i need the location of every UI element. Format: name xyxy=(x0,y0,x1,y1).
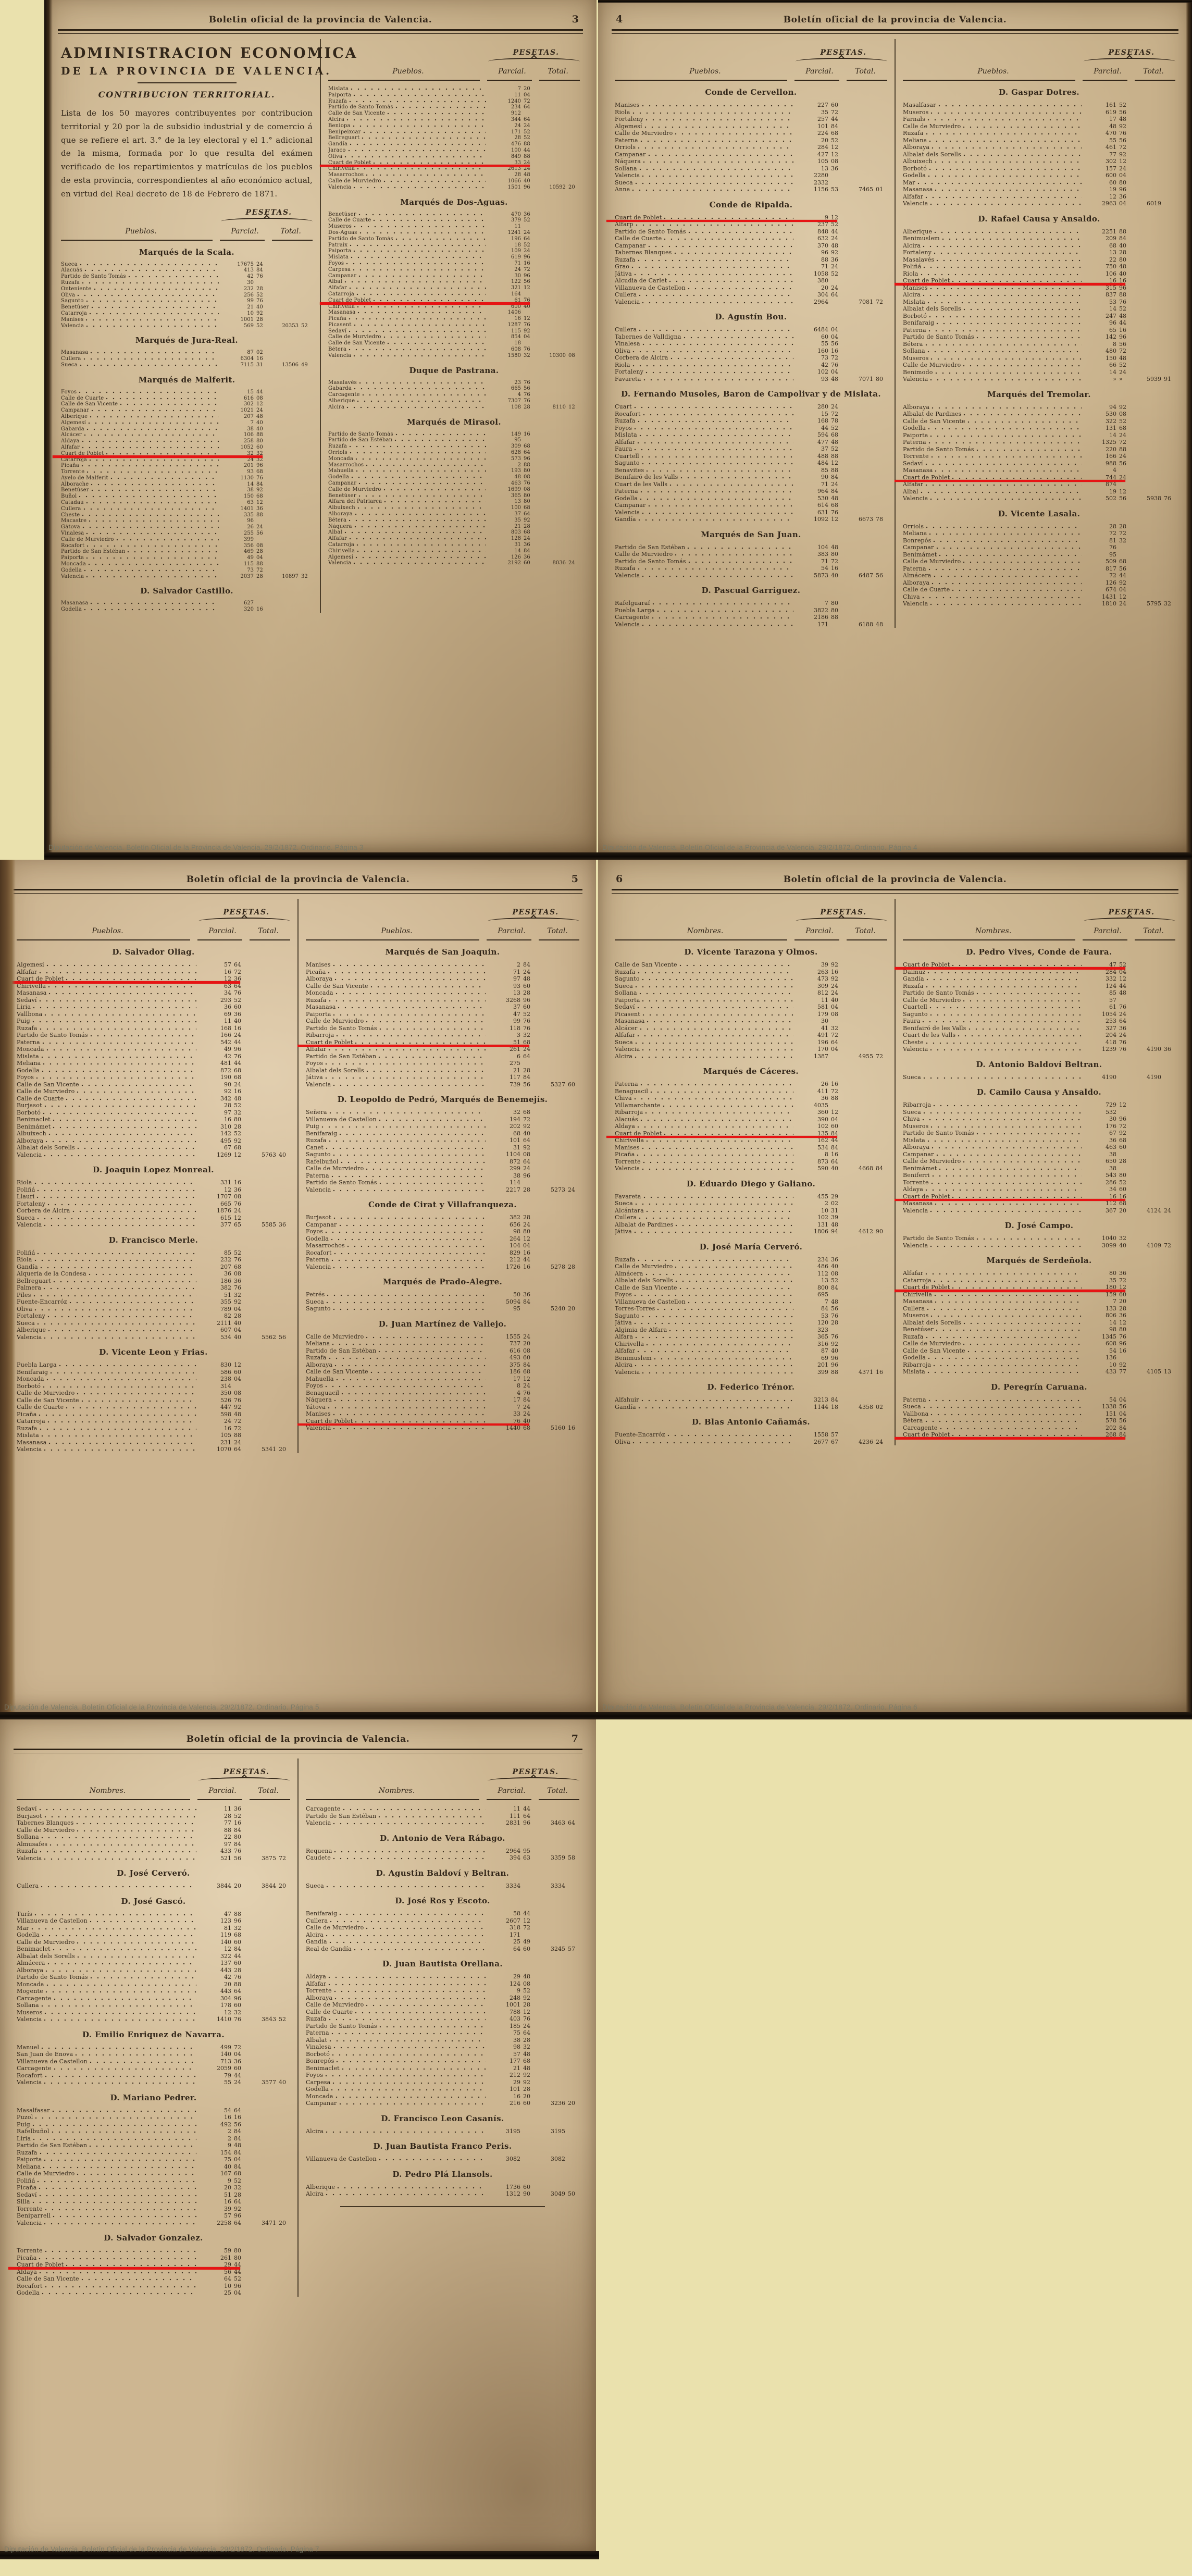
pueblo-name: Museros xyxy=(17,2009,42,2016)
parcial-value: 2280 xyxy=(198,1834,246,1840)
parcial-value-centimos: 92 xyxy=(1116,404,1132,411)
total-value: 618848 xyxy=(843,621,887,628)
pueblo-name: Villanueva de Castellon xyxy=(615,284,686,291)
parcial-value: 4 xyxy=(1084,467,1132,474)
pueblo-name: Almusafes xyxy=(17,1841,47,1848)
table-row: Puebla Larga382280 xyxy=(615,607,887,614)
page-number: 3 xyxy=(548,14,579,25)
table-row: Cuart de Poblet5168 xyxy=(306,1039,579,1046)
page-scan-3: Boletin oficial de la provincia de Valen… xyxy=(44,0,597,856)
parcial-value-pesetas: 100 xyxy=(488,505,521,511)
parcial-value-pesetas: 2 xyxy=(198,2128,231,2135)
parcial-value-centimos: 24 xyxy=(828,989,843,996)
parcial-value-centimos: 84 xyxy=(231,2163,246,2170)
parcial-value: 2280 xyxy=(1084,256,1132,263)
total-value: 419036 xyxy=(1132,1046,1175,1052)
pueblo-name: Yátova xyxy=(306,1404,326,1410)
table-row: Calle de Cuarte63224 xyxy=(615,235,887,242)
dot-leader xyxy=(83,357,219,360)
total-value: 746501 xyxy=(843,186,887,193)
pesetas-header-line: PESETAS. xyxy=(306,1768,579,1776)
table-row: Riola3572 xyxy=(615,109,887,116)
parcial-value: 8132 xyxy=(198,1925,246,1931)
pueblo-name: Alfafar xyxy=(61,444,80,450)
parcial-value-pesetas: 36 xyxy=(1084,1137,1116,1144)
parcial-value: 46376 xyxy=(488,480,536,486)
total-value-pesetas: 10897 xyxy=(269,574,299,579)
dot-leader xyxy=(86,556,219,559)
dot-leader xyxy=(647,1020,793,1023)
intro-paragraph: Lista de los 50 mayores contribuyentes p… xyxy=(61,107,313,201)
parcial-value-centimos: 96 xyxy=(1116,186,1132,193)
parcial-value-pesetas: 67 xyxy=(1084,1130,1116,1136)
pueblo-name: Ruzafa xyxy=(615,417,636,424)
parcial-value-pesetas: 1345 xyxy=(1084,1333,1116,1340)
parcial-value-centimos: 24 xyxy=(231,1207,246,1214)
parcial-value: 1336 xyxy=(796,165,843,172)
table-row: Aldaya10260 xyxy=(615,1123,887,1130)
total-value-centimos: 40 xyxy=(276,2079,290,2086)
header-rules xyxy=(17,1799,290,1800)
dot-leader xyxy=(349,537,486,540)
parcial-value-centimos: 32 xyxy=(1116,1235,1132,1242)
parcial-value: 19068 xyxy=(198,1074,246,1081)
parcial-value-pesetas: 581 xyxy=(796,1004,828,1010)
table-row: Valencia2963046019 xyxy=(903,200,1175,207)
dot-leader xyxy=(39,2194,196,2197)
parcial-value-pesetas: 66 xyxy=(1084,362,1116,368)
parcial-value-centimos: 96 xyxy=(254,463,269,468)
pueblo-name: Paterna xyxy=(903,1396,926,1403)
dot-leader xyxy=(934,574,1082,577)
parcial-value: 23124 xyxy=(198,1439,246,1446)
parcial-value: 2848 xyxy=(488,172,536,178)
parcial-value-centimos: 92 xyxy=(1116,1130,1132,1136)
table-row: Caudete39463335958 xyxy=(306,1854,579,1862)
red-underline-mark xyxy=(297,1423,529,1426)
table-row: Paiporta1104 xyxy=(328,92,580,98)
parcial-value-pesetas: 54 xyxy=(796,565,828,572)
parcial-value-centimos: 36 xyxy=(521,554,536,560)
dot-leader xyxy=(922,596,1082,599)
parcial-value: 48888 xyxy=(796,453,843,460)
pueblo-name: Algemesí xyxy=(17,961,44,968)
parcial-value-centimos: 28 xyxy=(254,286,269,292)
parcial-value-pesetas: 534 xyxy=(796,1144,828,1151)
parcial-value: 6792 xyxy=(1084,1130,1132,1136)
parcial-value: 13148 xyxy=(796,1221,843,1228)
parcial-value: 84844 xyxy=(796,228,843,235)
parcial-value: 31028 xyxy=(198,1123,246,1130)
parcial-value-pesetas: 101 xyxy=(488,1137,520,1144)
dot-leader xyxy=(356,292,486,295)
dot-leader xyxy=(353,354,486,357)
parcial-value-centimos: 76 xyxy=(1116,1046,1132,1052)
parcial-value-pesetas: 1066 xyxy=(488,178,521,184)
dot-leader xyxy=(935,371,1082,374)
parcial-value: 3572 xyxy=(796,109,843,116)
dot-leader xyxy=(43,1062,196,1065)
dot-leader xyxy=(634,448,793,451)
dot-leader xyxy=(366,1020,486,1023)
parcial-value: 1767524 xyxy=(221,262,269,267)
parcial-value-centimos: 08 xyxy=(521,474,536,480)
parcial-value: 205960 xyxy=(198,2065,246,2072)
parcial-value: 6840 xyxy=(488,1130,536,1137)
pueblo-name: Caudete xyxy=(306,1854,331,1861)
parcial-value-centimos: 96 xyxy=(231,2283,246,2289)
parcial-value-centimos: 28 xyxy=(231,1967,246,1974)
parcial-value: 41876 xyxy=(1084,1039,1132,1046)
parcial-value: 6652 xyxy=(1084,362,1132,368)
parcial-value-pesetas: 261 xyxy=(198,2255,231,2261)
parcial-value: 1387 xyxy=(796,1053,843,1060)
dot-leader xyxy=(648,153,793,156)
parcial-value-centimos: 88 xyxy=(828,1095,843,1101)
parcial-value-pesetas: 71 xyxy=(488,969,520,975)
pesetas-brace xyxy=(221,218,313,222)
parcial-value-pesetas: 2280 xyxy=(796,172,828,179)
parcial-value-pesetas: 96 xyxy=(1084,319,1116,326)
parcial-value-pesetas: 314 xyxy=(198,1383,231,1390)
parcial-col-rule xyxy=(1083,80,1127,81)
parcial-value: 8132 xyxy=(1084,537,1132,544)
dot-leader xyxy=(638,419,793,423)
table-row: Godella7372 xyxy=(61,567,313,574)
table-row: Picaña7124 xyxy=(306,969,579,976)
dot-leader xyxy=(44,1336,196,1339)
section-title: D. José Gascó. xyxy=(17,1897,290,1906)
parcial-value: 3992 xyxy=(198,2206,246,2212)
table-row: Calle de Cuarte61608 xyxy=(61,395,313,402)
pueblo-name: Benimodo xyxy=(903,369,933,376)
parcial-value: 267767 xyxy=(796,1439,843,1445)
pueblo-name: Piles xyxy=(17,1292,31,1298)
total-col-rule xyxy=(539,80,580,81)
name-col-rule xyxy=(61,240,213,241)
table-row: Gátova2624 xyxy=(61,524,313,530)
parcial-value: 80368 xyxy=(488,529,536,535)
parcial-value-centimos: 88 xyxy=(1116,291,1132,298)
parcial-value-pesetas: 42 xyxy=(198,1053,231,1060)
parcial-value: 10404 xyxy=(488,1242,536,1249)
pueblo-name: Paiporta xyxy=(615,997,640,1004)
parcial-value: 16878 xyxy=(796,417,843,424)
dot-leader xyxy=(357,549,486,552)
table-row: Calle de San Vicente6452 xyxy=(17,2275,290,2283)
parcial-value: 87268 xyxy=(198,1067,246,1074)
parcial-value: 4452 xyxy=(796,425,843,431)
parcial-value-centimos: 24 xyxy=(520,1221,536,1228)
dot-leader xyxy=(669,1329,793,1332)
parcial-value-pesetas: 377 xyxy=(198,1221,231,1228)
parcial-value-centimos: 92 xyxy=(231,2206,246,2212)
table-row: Partido de Santo Tomás11876 xyxy=(306,1025,579,1032)
parcial-value-centimos: 96 xyxy=(231,1046,246,1052)
table-row: Alboraya9748 xyxy=(306,975,579,983)
pueblo-name: Grao xyxy=(615,263,629,270)
pueblo-name: Campanar xyxy=(306,1221,337,1228)
table-row: Benifaraig5844 xyxy=(306,1910,579,1917)
dot-leader xyxy=(42,2292,196,2295)
parcial-value-pesetas: 26 xyxy=(796,1081,828,1087)
pueblo-name: Albalat de Pardines xyxy=(903,411,961,417)
table-row: Sagunto95524020 xyxy=(306,1305,579,1312)
parcial-value: 3608 xyxy=(198,1270,246,1277)
parcial-value-pesetas: 126 xyxy=(1084,579,1116,586)
parcial-value-pesetas: 122 xyxy=(488,279,521,284)
dot-leader xyxy=(930,434,1082,437)
parcial-value-pesetas: 14 xyxy=(221,481,254,487)
pueblo-name: Carcagente xyxy=(17,2065,52,2072)
parcial-value-centimos: 80 xyxy=(254,438,269,444)
parcial-value-centimos: 76 xyxy=(520,1018,536,1024)
dot-leader xyxy=(39,999,196,1002)
parcial-value-centimos: 24 xyxy=(231,1439,246,1446)
dot-leader xyxy=(44,1154,196,1157)
parcial-value: 39463 xyxy=(488,1854,536,1861)
table-row: Alfafar49172 xyxy=(615,1032,887,1039)
dot-leader xyxy=(79,494,219,498)
table-row: Foyos9880 xyxy=(306,1228,579,1235)
parcial-value-pesetas: 1240 xyxy=(488,98,521,104)
parcial-value-centimos: 92 xyxy=(254,487,269,493)
name-col-rule xyxy=(17,1799,190,1800)
pueblo-name: Alfafar xyxy=(903,1270,923,1277)
pueblo-name: Campanar xyxy=(615,502,646,509)
dot-leader xyxy=(44,2018,196,2021)
table-row: Fortaleny25744 xyxy=(615,116,887,123)
parcial-value-pesetas: 6304 xyxy=(221,356,254,362)
dot-leader xyxy=(963,560,1082,563)
dot-leader xyxy=(77,293,219,296)
parcial-value-pesetas: 2258 xyxy=(198,2220,231,2226)
dot-leader xyxy=(358,481,486,485)
dot-leader xyxy=(357,506,486,509)
dot-leader xyxy=(952,476,1082,479)
parcial-value-centimos: 96 xyxy=(520,1819,536,1826)
parcial-value-pesetas: 11 xyxy=(488,92,521,98)
pueblo-name: Godella xyxy=(17,1067,40,1074)
table-row: Orriols2828 xyxy=(903,523,1175,530)
table-row: Meliana5556 xyxy=(903,137,1175,144)
table-row: Manises284 xyxy=(306,961,579,969)
table-row: Albuixech10068 xyxy=(328,505,580,511)
parcial-value-pesetas: 6 xyxy=(488,1053,520,1060)
pueblo-name: Ruzafa xyxy=(306,1137,327,1144)
pueblo-name: Sollana xyxy=(17,2002,39,2009)
parcial-value: 1031 xyxy=(796,1207,843,1214)
parcial-value-centimos: 72 xyxy=(828,1088,843,1095)
pueblo-name: Ribarroja xyxy=(903,1101,931,1108)
table-row: Poliñá8552 xyxy=(17,1249,290,1257)
parcial-value-pesetas: 7 xyxy=(796,600,828,606)
parcial-value-pesetas: 586 xyxy=(198,1369,231,1376)
table-row: Faura3752 xyxy=(615,445,887,453)
parcial-value-pesetas: 1431 xyxy=(1084,593,1116,600)
parcial-value-pesetas: 470 xyxy=(1084,130,1116,137)
table-row: Cuart de Poblet3324 xyxy=(328,160,580,166)
parcial-value-centimos: 78 xyxy=(828,417,843,424)
parcial-value-pesetas: 12 xyxy=(198,1186,231,1193)
dot-leader xyxy=(37,1322,196,1325)
parcial-value: 38276 xyxy=(198,1284,246,1291)
dot-leader xyxy=(922,1020,1082,1023)
pueblo-name: Rocafort xyxy=(17,2283,43,2289)
parcial-value: 37048 xyxy=(796,242,843,249)
parcial-value: 17672 xyxy=(1084,1123,1132,1130)
parcial-value: 54380 xyxy=(1084,1172,1132,1179)
dot-leader xyxy=(923,1076,1082,1079)
pueblo-name: Gandía xyxy=(328,141,347,147)
parcial-value: 48640 xyxy=(796,1263,843,1270)
parcial-value: 2852 xyxy=(488,135,536,141)
parcial-value: 399 xyxy=(221,537,269,542)
parcial-value-centimos: 52 xyxy=(521,135,536,141)
parcial-value-pesetas: 4 xyxy=(1084,467,1116,474)
parcial-value: 82916 xyxy=(488,1249,536,1256)
total-value: 803624 xyxy=(536,560,580,566)
dot-leader xyxy=(645,118,793,121)
parcial-value-pesetas: 418 xyxy=(1084,1039,1116,1046)
table-row: Partido de Santo Tomás8548 xyxy=(903,989,1175,997)
parcial-value: 141076 xyxy=(198,2016,246,2023)
dot-leader xyxy=(638,567,793,570)
parcial-value: 23804 xyxy=(198,1376,246,1382)
table-row: Borbotó314 xyxy=(17,1383,290,1390)
parcial-value: 3334 xyxy=(488,1883,536,1889)
total-value-centimos: 56 xyxy=(873,572,887,579)
page-number: 4 xyxy=(616,14,647,25)
dot-leader xyxy=(952,279,1082,282)
parcial-value-pesetas: 2964 xyxy=(796,299,828,305)
table-row: Albalat dels Sorells32244 xyxy=(17,1953,290,1960)
parcial-value-centimos: 24 xyxy=(254,524,269,530)
parcial-value-centimos: 16 xyxy=(520,1249,536,1256)
table-row: Liria3660 xyxy=(17,1004,290,1011)
dot-leader xyxy=(334,1252,486,1255)
dot-leader xyxy=(928,1398,1082,1402)
parcial-value-centimos: 76 xyxy=(231,1200,246,1207)
dot-leader xyxy=(75,2053,196,2056)
parcial-value-centimos: 48 xyxy=(520,975,536,982)
table-row: Mislata5376 xyxy=(903,299,1175,306)
parcial-value-pesetas: 2677 xyxy=(796,1439,828,1445)
dot-leader xyxy=(674,251,793,254)
total-value-pesetas: 4124 xyxy=(1132,1207,1161,1214)
pueblo-name: Valencia xyxy=(17,1334,42,1341)
parcial-value-pesetas: 322 xyxy=(1084,418,1116,425)
table-row: Alcira171 xyxy=(306,1931,579,1939)
parcial-value-pesetas: 873 xyxy=(796,1158,828,1165)
dot-leader xyxy=(963,1342,1082,1345)
parcial-value-centimos: 24 xyxy=(828,235,843,242)
parcial-value: 87264 xyxy=(488,1158,536,1165)
dot-leader xyxy=(85,318,219,321)
parcial-value: 11876 xyxy=(488,1025,536,1032)
parcial-value-pesetas: 310 xyxy=(198,1123,231,1130)
parcial-value-centimos: 52 xyxy=(231,1249,246,1256)
pueblos-label: Pueblos. xyxy=(17,927,198,935)
table-row: Valencia126912576340 xyxy=(17,1151,290,1159)
table-row: Calle de Murviedro35008 xyxy=(17,1390,290,1397)
table-row: Puig49256 xyxy=(17,2121,290,2128)
parcial-value: 37765 xyxy=(198,1221,246,1228)
parcial-value: 284 xyxy=(198,2135,246,2142)
table-row: Museros17672 xyxy=(903,1123,1175,1130)
parcial-col-rule xyxy=(794,939,839,940)
parcial-value: 72912 xyxy=(1084,1101,1132,1108)
table-row: Foyos4452 xyxy=(615,425,887,432)
table-row: Alcácer4132 xyxy=(615,1025,887,1032)
parcial-value-centimos: 80 xyxy=(1116,1172,1132,1179)
dot-leader xyxy=(925,343,1082,346)
parcial-value-centimos: 04 xyxy=(231,2156,246,2163)
pueblo-name: Albalat dels Sorells xyxy=(17,1144,75,1151)
table-row: Torrente3992 xyxy=(17,2206,290,2213)
parcial-value-centimos: 28 xyxy=(828,1319,843,1326)
pueblo-name: Oliva xyxy=(17,1306,32,1312)
dot-leader xyxy=(358,213,486,216)
pueblo-name: Corbera de Alcira xyxy=(17,1207,70,1214)
table-row: Foyos695 xyxy=(615,1291,887,1298)
parcial-value-pesetas: 608 xyxy=(1084,1340,1116,1347)
parcial-value-pesetas: 34 xyxy=(198,989,231,996)
pueblo-name: Beniferri xyxy=(903,1172,930,1179)
section-title: D. Fernando Musoles, Baron de Campolivar… xyxy=(615,389,887,399)
total-value: 347120 xyxy=(246,2220,290,2226)
head-rule xyxy=(58,29,583,34)
total-value: 1089732 xyxy=(269,574,313,579)
parcial-value-pesetas: 17 xyxy=(488,1396,520,1403)
pueblo-name: Alboraya xyxy=(306,975,332,982)
parcial-value: 62864 xyxy=(488,450,536,455)
parcial-value-centimos: 40 xyxy=(828,1165,843,1172)
parcial-value-centimos: 84 xyxy=(520,1361,536,1368)
parcial-value: 63176 xyxy=(796,509,843,516)
table-row: Cuart de Poblet6176 xyxy=(328,298,580,304)
parcial-value: 171 xyxy=(488,1931,536,1938)
dot-leader xyxy=(77,1090,196,1093)
parcial-value-centimos: 88 xyxy=(521,141,536,147)
parcial-value-centimos: 12 xyxy=(521,285,536,291)
parcial-value-pesetas: 47 xyxy=(488,1011,520,1018)
table-row: Alacuás39004 xyxy=(615,1116,887,1123)
parcial-value: 3668 xyxy=(1084,1137,1132,1144)
parcial-value: 2472 xyxy=(488,267,536,273)
pueblo-name: Valencia xyxy=(17,1221,42,1228)
parcial-value-centimos: 76 xyxy=(521,380,536,386)
parcial-value: 109212 xyxy=(796,516,843,523)
parcial-value-pesetas: 82 xyxy=(198,1312,231,1319)
table-row: Valencia171618848 xyxy=(615,621,887,628)
table-row: Ruzafa8836 xyxy=(615,256,887,264)
dot-leader xyxy=(632,1441,793,1444)
parcial-col-rule xyxy=(220,240,265,241)
parcial-value-pesetas: 48 xyxy=(488,474,521,480)
table-row: Manuel49972 xyxy=(17,2044,290,2051)
dot-leader xyxy=(336,992,486,995)
pueblos-label: Pueblos. xyxy=(903,67,1084,76)
parcial-value: 1712 xyxy=(488,1376,536,1382)
parcial-value-centimos: 60 xyxy=(520,1354,536,1361)
table-row: Paterna54244 xyxy=(17,1039,290,1046)
pueblo-name: Valencia xyxy=(615,1369,640,1376)
pesetas-label: PESETAS. xyxy=(1088,48,1175,57)
pueblo-name: Manises xyxy=(615,102,640,108)
pueblo-name: Calle de Murviedro xyxy=(903,123,961,130)
parcial-value-pesetas: 600 xyxy=(1084,172,1116,179)
